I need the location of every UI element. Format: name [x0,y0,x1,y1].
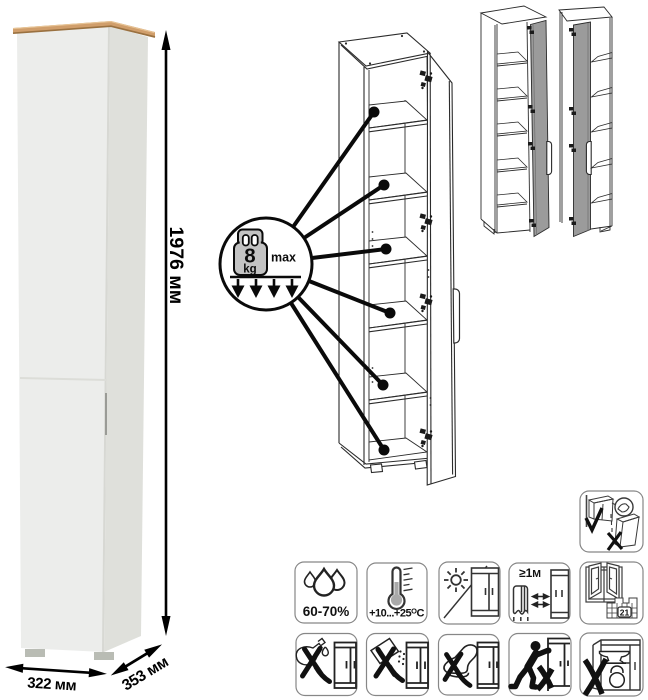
svg-text:+10...+25OC: +10...+25OC [369,607,424,620]
svg-text:60-70%: 60-70% [303,604,350,619]
svg-text:≥1М: ≥1М [519,566,541,580]
svg-text:1976 мм: 1976 мм [165,227,187,305]
svg-text:21: 21 [620,608,630,618]
svg-text:kg: kg [243,263,256,275]
svg-text:322 мм: 322 мм [27,675,77,695]
svg-text:max: max [271,251,296,265]
